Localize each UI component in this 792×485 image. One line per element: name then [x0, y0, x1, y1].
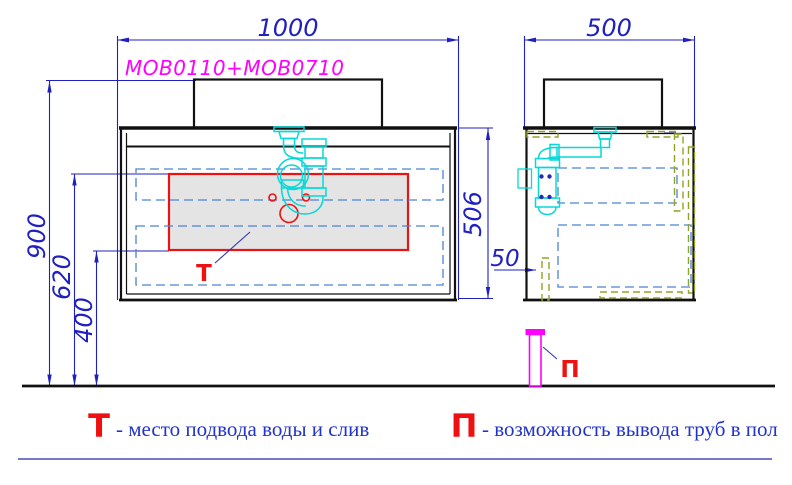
product-code-label: MOB0110+MOB0710 — [125, 56, 345, 80]
floor-pipe-marker: П — [560, 357, 579, 383]
side-backsplash — [544, 80, 662, 128]
side-drawer-outlines — [558, 168, 691, 287]
floor-pipe — [526, 329, 546, 386]
legend-water-text: - место подвода воды и слив — [116, 417, 369, 441]
dim-zone-top-label: 620 — [48, 254, 76, 300]
water-zone-marker: Т — [196, 261, 212, 287]
legend-water-marker: Т — [88, 407, 110, 445]
bracket-screws — [539, 174, 551, 199]
dim-pipe-offset-label: 50 — [490, 246, 519, 272]
drawer-outline — [558, 225, 691, 287]
dim-zone-bottom-label: 400 — [70, 297, 98, 343]
drawing-canvas: MOB0110+MOB0710 1000 500 900 620 400 506… — [0, 0, 792, 485]
legend-pipe-text: - возможность вывода труб в пол — [482, 417, 778, 441]
siphon-side — [518, 128, 616, 215]
dim-cabinet-height-label: 506 — [459, 191, 487, 237]
dim-total-height-label: 900 — [23, 213, 51, 259]
front-backsplash — [194, 80, 382, 128]
wall-bracket-icon — [518, 169, 532, 188]
dim-side-depth-label: 500 — [586, 14, 632, 42]
drawer-outline — [558, 168, 677, 203]
water-connection-zone — [169, 174, 408, 250]
legend-pipe-marker: П — [451, 407, 478, 445]
technical-drawing-page: MOB0110+MOB0710 1000 500 900 620 400 506… — [0, 0, 792, 485]
dim-front-width-label: 1000 — [257, 14, 318, 42]
